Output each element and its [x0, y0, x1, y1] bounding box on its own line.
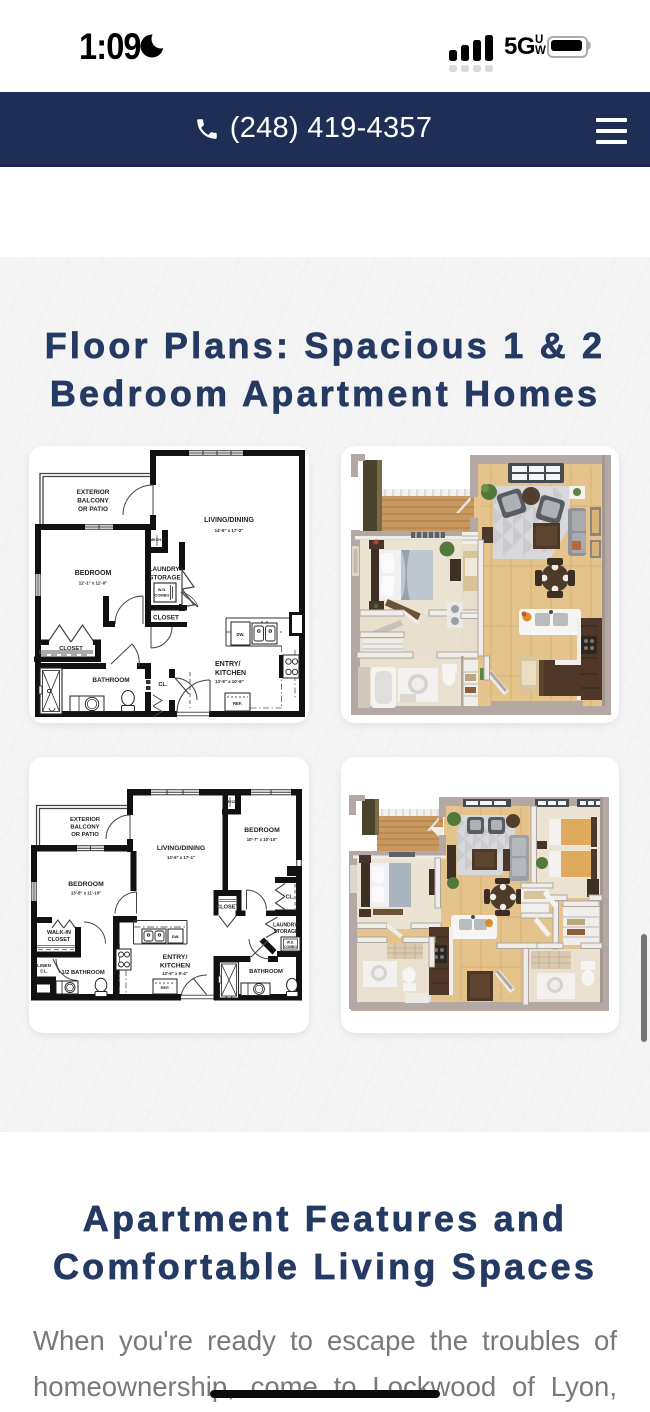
- svg-text:MECH.: MECH.: [226, 800, 238, 804]
- svg-text:COMBO: COMBO: [284, 945, 297, 949]
- svg-text:LINEN: LINEN: [37, 963, 51, 968]
- svg-text:OR PATIO: OR PATIO: [78, 506, 108, 513]
- svg-text:BATHROOM: BATHROOM: [249, 969, 283, 975]
- svg-text:CL.: CL.: [40, 969, 47, 974]
- svg-text:DW.: DW.: [237, 632, 245, 637]
- svg-text:BEDROOM: BEDROOM: [244, 827, 280, 834]
- svg-text:REF.: REF.: [233, 701, 242, 706]
- svg-text:STORAGE: STORAGE: [149, 575, 181, 582]
- svg-text:COMBO: COMBO: [155, 593, 170, 598]
- svg-text:10'-7" x 10'-10": 10'-7" x 10'-10": [247, 837, 278, 842]
- svg-text:STORAGE: STORAGE: [274, 929, 299, 935]
- svg-text:12'-1" x 11'-0": 12'-1" x 11'-0": [79, 581, 107, 586]
- svg-text:EXTERIOR: EXTERIOR: [70, 817, 101, 823]
- svg-text:13'-8" x 10'-8": 13'-8" x 10'-8": [215, 679, 244, 684]
- svg-text:CLOSET: CLOSET: [48, 937, 71, 943]
- svg-text:BEDROOM: BEDROOM: [68, 881, 104, 888]
- svg-text:LAUNDRY/: LAUNDRY/: [273, 923, 299, 929]
- svg-text:OR PATIO: OR PATIO: [71, 832, 99, 838]
- svg-text:BATHROOM: BATHROOM: [92, 677, 129, 684]
- svg-text:CLOSET: CLOSET: [153, 615, 179, 622]
- svg-text:WALK-IN: WALK-IN: [47, 930, 71, 936]
- svg-text:13'-8" x 11'-10": 13'-8" x 11'-10": [71, 891, 101, 896]
- svg-text:W.D.: W.D.: [158, 587, 166, 592]
- svg-text:EXTERIOR: EXTERIOR: [77, 489, 110, 496]
- svg-text:KITCHEN: KITCHEN: [160, 963, 190, 970]
- svg-text:13'-6" x 9'-4": 13'-6" x 9'-4": [162, 971, 188, 976]
- svg-text:LIVING/DINING: LIVING/DINING: [157, 845, 205, 852]
- svg-text:KITCHEN: KITCHEN: [215, 670, 246, 677]
- svg-text:BALCONY: BALCONY: [70, 825, 99, 831]
- svg-text:CLOSET: CLOSET: [59, 646, 83, 652]
- svg-text:CL.: CL.: [286, 895, 295, 901]
- svg-text:14'-6" x 17'-2": 14'-6" x 17'-2": [215, 528, 244, 533]
- svg-text:REF.: REF.: [161, 985, 170, 990]
- svg-text:W.D.: W.D.: [287, 941, 294, 945]
- svg-text:LIVING/DINING: LIVING/DINING: [204, 517, 254, 524]
- svg-text:MECH.: MECH.: [150, 538, 162, 542]
- svg-text:BALCONY: BALCONY: [77, 498, 109, 505]
- svg-text:1/2 BATHROOM: 1/2 BATHROOM: [61, 970, 105, 976]
- svg-text:13'-6" x 17'-1": 13'-6" x 17'-1": [167, 855, 195, 860]
- svg-text:ENTRY/: ENTRY/: [163, 954, 188, 961]
- svg-text:CL.: CL.: [158, 682, 168, 688]
- svg-text:BEDROOM: BEDROOM: [75, 570, 112, 577]
- svg-text:LAUNDRY/: LAUNDRY/: [149, 566, 182, 573]
- svg-text:CLOSET: CLOSET: [216, 905, 239, 911]
- svg-text:DW.: DW.: [172, 934, 180, 939]
- svg-text:ENTRY/: ENTRY/: [215, 661, 240, 668]
